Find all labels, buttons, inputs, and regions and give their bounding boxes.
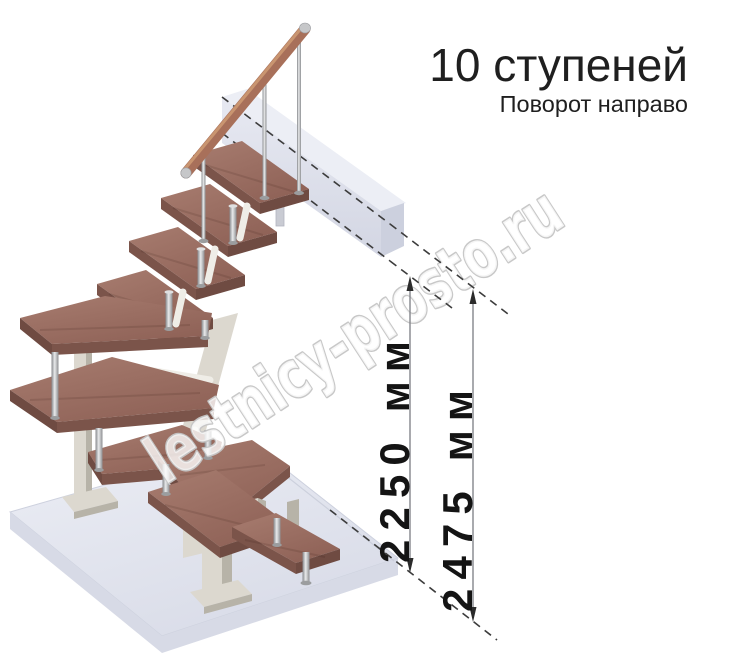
dimension-label-2475: 2475 мм (434, 390, 481, 612)
connector-post (198, 249, 205, 286)
connector-post (96, 428, 103, 470)
page-subtitle: Поворот направо (500, 91, 688, 117)
baluster (263, 78, 267, 197)
connector-post (202, 320, 209, 338)
post-foot (196, 284, 206, 288)
handrail-end-cap (181, 168, 191, 178)
connector-post (166, 292, 173, 329)
step1-support-leg (303, 552, 310, 583)
post-foot (164, 327, 174, 331)
slab-end-face (381, 203, 404, 257)
connector-post (52, 352, 59, 418)
baluster-base (294, 191, 304, 195)
post-foot (50, 416, 60, 420)
staircase-drawing: lestnicy-prosto.ru 2250 мм 2475 мм 10 ст… (0, 0, 744, 655)
post-foot (228, 241, 238, 245)
handrail-top-cap (299, 23, 310, 33)
baluster (202, 153, 206, 240)
post-cap (197, 247, 206, 251)
connector-post (274, 518, 281, 545)
post-foot (200, 336, 210, 340)
page-title: 10 ступеней (429, 39, 688, 91)
connector-post (230, 206, 237, 243)
post-cap (229, 204, 238, 208)
baluster-base (260, 196, 270, 200)
post-foot (272, 543, 282, 547)
baluster (297, 37, 301, 192)
post-cap (165, 290, 174, 294)
leg-foot (301, 581, 312, 586)
baluster-base (199, 239, 209, 243)
post-foot (94, 468, 104, 472)
staircase-product-diagram: lestnicy-prosto.ru 2250 мм 2475 мм 10 ст… (0, 0, 744, 655)
dimension-label-2250: 2250 мм (371, 341, 418, 563)
